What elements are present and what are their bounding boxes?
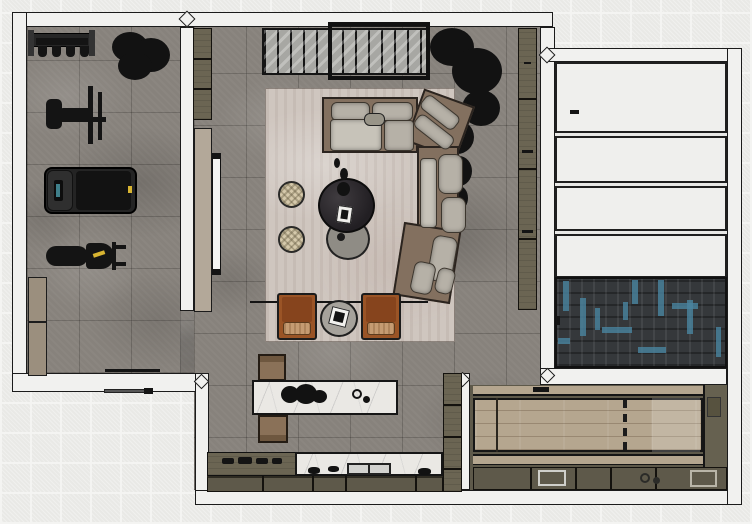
tall-cabinet xyxy=(443,373,462,492)
exterior-step xyxy=(104,389,148,393)
table-plant-icon xyxy=(337,182,350,196)
weight-plate xyxy=(66,46,75,57)
burner xyxy=(272,458,282,464)
sofa-cushion xyxy=(438,154,463,194)
burner xyxy=(222,458,234,464)
pouf xyxy=(278,181,305,208)
cable-machine-post xyxy=(88,86,93,144)
wall-left xyxy=(12,12,27,392)
stair-tread xyxy=(555,234,727,278)
tv-mount xyxy=(212,269,221,275)
utility-bottom-strip xyxy=(473,454,703,465)
shelf-item xyxy=(522,230,533,233)
weight-plate xyxy=(52,46,61,57)
cabinet-seam xyxy=(312,476,314,492)
utility-item xyxy=(690,470,717,487)
armchair-seat xyxy=(367,322,395,335)
weight-plate xyxy=(80,46,89,57)
wall-right-top xyxy=(548,48,742,62)
table-plant-icon xyxy=(334,158,340,168)
island-stool-edge xyxy=(260,356,284,362)
wall-east-main xyxy=(540,27,555,373)
sofa-seat xyxy=(420,158,437,228)
utility-sink xyxy=(538,470,566,486)
cabinet-seam xyxy=(443,436,462,438)
burner xyxy=(256,458,268,464)
shelf-seam xyxy=(518,98,537,100)
weight-rack-bar xyxy=(36,38,88,45)
parquet-plank xyxy=(623,302,628,320)
window-frame xyxy=(328,22,430,80)
utility-handle xyxy=(533,387,549,392)
tv xyxy=(212,153,221,275)
counter-item xyxy=(418,468,431,475)
utility-item xyxy=(653,477,660,484)
parquet-plank xyxy=(638,347,666,353)
parquet-plank xyxy=(632,280,638,304)
table-book-item xyxy=(340,210,348,220)
utility-seam xyxy=(496,398,498,452)
cabinet-seam xyxy=(415,476,417,492)
table-decor xyxy=(337,233,345,241)
wardrobe-seam xyxy=(193,88,212,90)
armchair-seat xyxy=(283,322,311,335)
wall-right-east xyxy=(727,48,742,505)
gym-cabinet xyxy=(28,277,47,376)
shelf-seam xyxy=(518,238,537,240)
workout-bench xyxy=(46,246,88,266)
gym-plant-icon xyxy=(118,52,152,80)
table-plant-icon xyxy=(340,168,348,180)
cabinet-seam xyxy=(530,467,532,490)
parquet-plank xyxy=(595,308,600,330)
wall-top xyxy=(12,12,553,27)
parquet-plank xyxy=(672,303,698,309)
parquet-plank xyxy=(563,281,569,311)
wardrobe-seam xyxy=(193,58,212,60)
parquet-plank xyxy=(602,327,632,333)
wall-divider xyxy=(180,27,194,311)
living-plant-icon xyxy=(452,48,502,94)
cabinet-seam xyxy=(345,476,347,492)
island-decor xyxy=(363,396,370,403)
cable-machine-post xyxy=(98,92,102,140)
cabinet-seam xyxy=(443,468,462,470)
cabinet-seam xyxy=(575,467,577,490)
sofa-cushion xyxy=(441,197,466,233)
workout-bench-seat xyxy=(86,243,114,269)
cabinet-seam xyxy=(610,467,612,490)
utility-cabinets xyxy=(473,467,727,490)
shelf-item xyxy=(524,62,531,64)
cabinet-seam xyxy=(443,404,462,406)
bench-leg xyxy=(115,245,126,249)
shelf-seam xyxy=(518,168,537,170)
wall-bottom xyxy=(195,490,742,505)
treadmill-logo xyxy=(128,186,132,193)
utility-side-item xyxy=(707,397,721,417)
armchair-back xyxy=(282,297,312,322)
media-panel xyxy=(194,128,212,312)
stair-mark xyxy=(570,110,579,114)
base-cabinets xyxy=(207,476,443,492)
rack-post xyxy=(89,30,95,56)
utility-top-strip xyxy=(473,386,703,396)
utility-dashed-line xyxy=(623,400,627,450)
parquet-plank xyxy=(558,338,570,344)
parquet-plank xyxy=(716,327,721,357)
stair-tread xyxy=(555,186,727,231)
tv-mount xyxy=(212,153,221,159)
treadmill-screen xyxy=(56,184,60,197)
utility-highlight xyxy=(652,398,700,452)
doorway-floor xyxy=(180,311,194,373)
armchair-back xyxy=(366,297,396,322)
gym-cabinet-seam xyxy=(28,321,47,323)
cooktop-counter xyxy=(207,452,296,476)
sink-divider xyxy=(368,463,370,475)
treadmill-belt xyxy=(76,171,131,210)
floorplan-canvas[interactable] xyxy=(0,0,752,524)
stair-tread xyxy=(555,62,727,133)
island-decor-ring xyxy=(352,389,362,399)
shelf-item xyxy=(522,150,533,153)
island-stool-edge xyxy=(260,435,286,441)
cable-machine-bar xyxy=(58,117,106,122)
stair-tread xyxy=(555,136,727,183)
counter-item xyxy=(328,466,339,472)
cabinet-seam xyxy=(262,476,264,492)
burner xyxy=(238,457,252,464)
sofa-tray xyxy=(364,113,385,126)
weight-plate xyxy=(38,46,47,57)
exterior-step-end xyxy=(144,388,153,394)
pouf xyxy=(278,226,305,253)
utility-item xyxy=(640,473,650,483)
entry-mark xyxy=(556,316,560,325)
threshold xyxy=(105,369,160,372)
bench-leg xyxy=(115,262,126,266)
parquet-plank xyxy=(658,280,664,316)
rack-post xyxy=(28,30,34,56)
island-decor xyxy=(312,390,327,403)
counter-item xyxy=(308,467,320,474)
wardrobe-nw xyxy=(193,28,212,120)
parquet-plank xyxy=(580,298,586,336)
sofa-seat xyxy=(384,120,414,151)
wall-entry-south xyxy=(540,368,727,385)
